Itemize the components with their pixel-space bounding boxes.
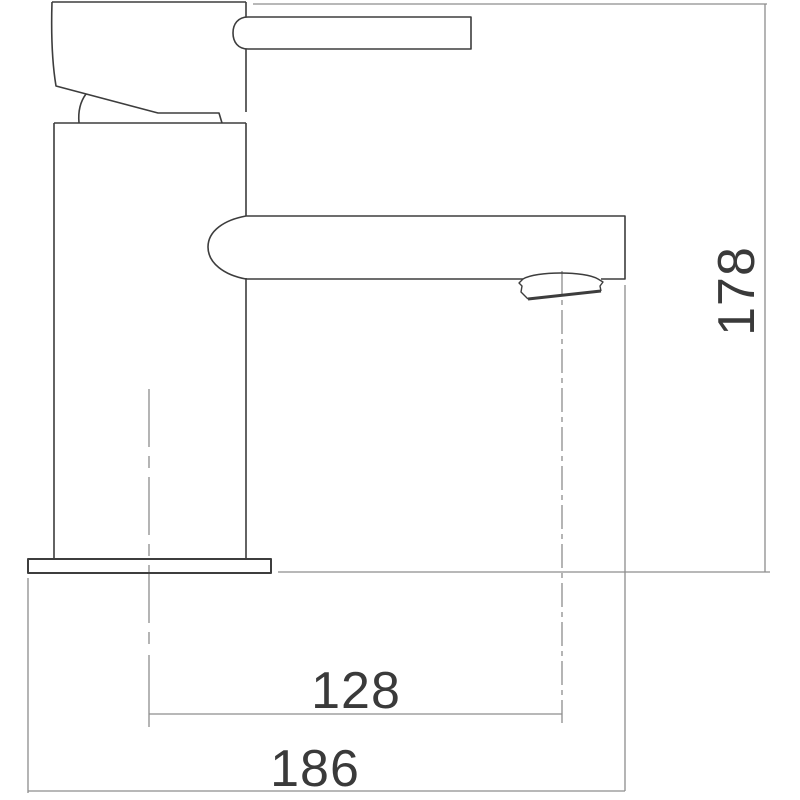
faucet-dimension-drawing: 178 128 186	[0, 0, 800, 800]
body-column-outline	[54, 123, 246, 559]
handle-pivot-arc	[79, 94, 86, 123]
spout-outline	[208, 216, 625, 279]
faucet-outline-group	[28, 2, 625, 573]
width-dimension-label: 186	[270, 740, 360, 798]
reach-dimension-label: 128	[311, 662, 401, 720]
height-dimension-label: 178	[708, 246, 766, 336]
aerator-bottom-edge	[528, 291, 601, 299]
drawing-svg: 178 128 186	[0, 0, 800, 800]
dimension-labels-group: 178 128 186	[270, 246, 766, 798]
lever-arm-outline	[233, 17, 471, 49]
